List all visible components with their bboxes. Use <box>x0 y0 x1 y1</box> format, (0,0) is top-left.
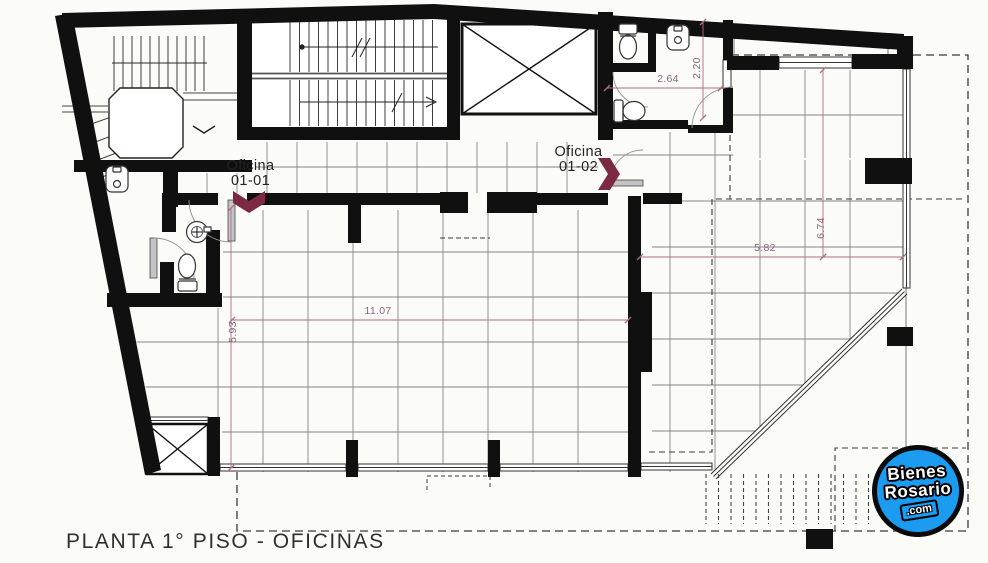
floor-plan-drawing <box>0 0 988 563</box>
room-label-office-01-02: Oficina 01-02 <box>536 145 621 175</box>
toilet-icon <box>178 254 197 291</box>
dimension-label-main-depth: 5.93 <box>227 310 239 354</box>
room-label-line: Oficina <box>208 159 293 174</box>
dimension-label-right-width: 5.82 <box>742 242 788 254</box>
page-title: PLANTA 1° PISO - OFICINAS <box>66 530 385 554</box>
stair-landing-octagon <box>109 88 183 158</box>
dimension-label-bath-depth: 2.20 <box>691 46 703 90</box>
window-diagonal <box>711 289 907 479</box>
room-label-line: 01-01 <box>208 174 293 189</box>
sink-icon <box>106 166 128 192</box>
arrow-down-icon <box>193 126 215 133</box>
tile-grid-office-01-02 <box>613 132 905 472</box>
logo-line-2: Rosario <box>884 479 952 502</box>
floor-plan-page: Oficina 01-01 Oficina 01-02 11.07 5.93 5… <box>0 0 988 563</box>
room-label-office-01-01: Oficina 01-01 <box>208 159 293 189</box>
stairs-icon-open <box>112 36 207 91</box>
dimension-label-main-width: 11.07 <box>355 305 401 317</box>
dimension-label-bath-width: 2.64 <box>646 73 690 85</box>
sink-icon <box>667 25 689 50</box>
room-label-line: Oficina <box>536 145 621 160</box>
door-leaf <box>228 200 235 241</box>
pergola-hatch <box>706 474 869 524</box>
tile-grid-terrace <box>733 70 904 158</box>
stairwell-interior <box>252 17 447 127</box>
door-leaf <box>150 238 157 278</box>
toilet-icon <box>614 100 645 122</box>
logo-line-3: .com <box>899 499 939 522</box>
toilet-icon <box>619 24 637 59</box>
room-label-line: 01-02 <box>536 160 621 175</box>
dimension-label-right-depth: 6.74 <box>815 206 827 250</box>
